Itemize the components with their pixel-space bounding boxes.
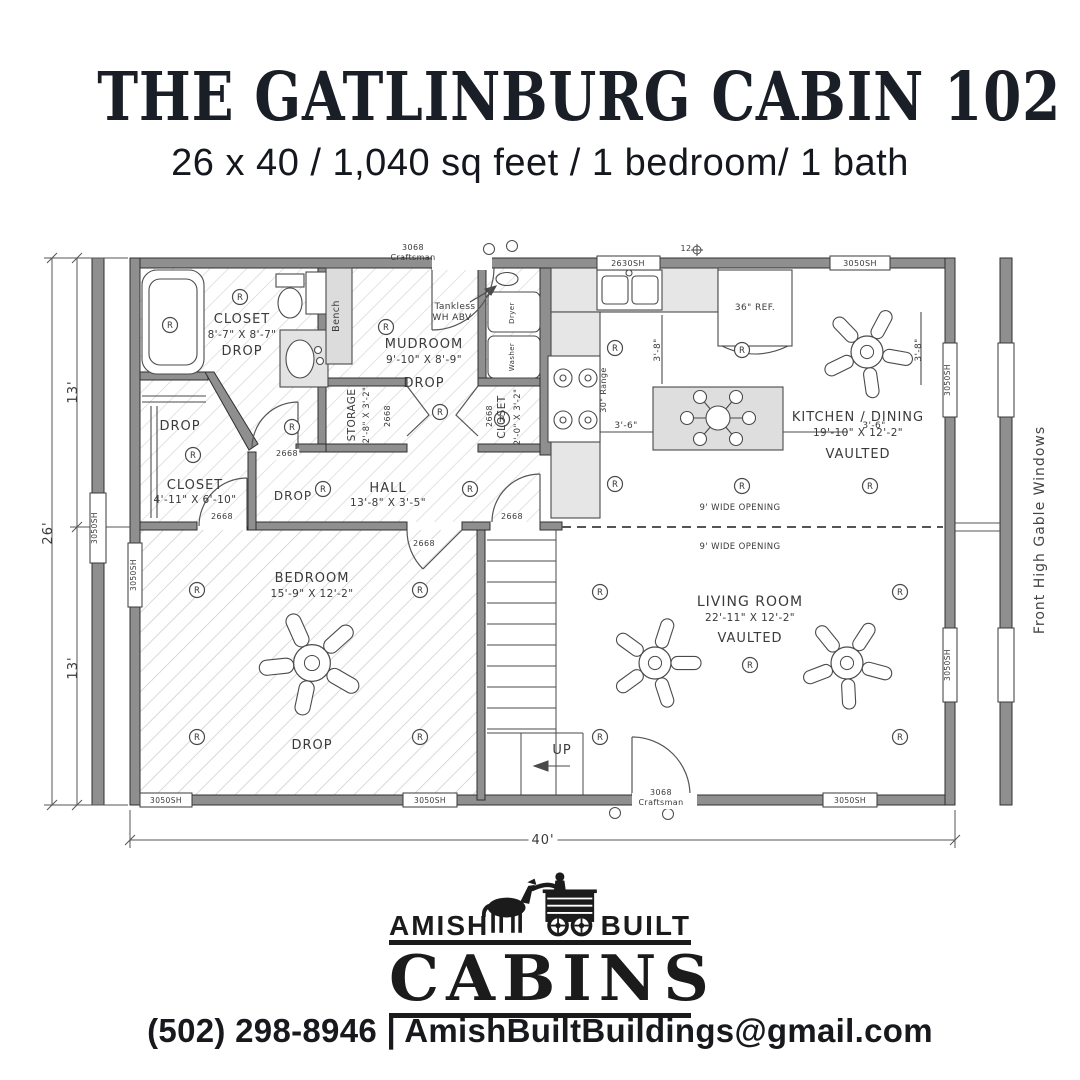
- plan-label: 22'-11" X 12'-2": [705, 612, 795, 624]
- ceiling-fan: [614, 617, 701, 709]
- recessed-light-symbol: R: [186, 448, 201, 463]
- recessed-light-symbol: R: [893, 585, 908, 600]
- recessed-light-symbol: R: [163, 318, 178, 333]
- plan-label: 3050SH: [943, 364, 952, 396]
- svg-text:R: R: [739, 482, 745, 492]
- plan-label: VAULTED: [825, 447, 890, 462]
- recessed-light-symbol: R: [863, 479, 878, 494]
- plan-label: 19'-10" X 12'-2": [813, 427, 903, 439]
- recessed-light-symbol: R: [379, 320, 394, 335]
- plan-label: CLOSET: [496, 395, 508, 438]
- plan-label: 2668: [485, 405, 494, 427]
- plan-label: DROP: [159, 419, 200, 434]
- toilet: [276, 274, 304, 287]
- svg-text:R: R: [194, 586, 200, 596]
- dim-bottom: 40': [531, 833, 554, 848]
- svg-text:R: R: [289, 423, 295, 433]
- plan-label: BEDROOM: [275, 571, 350, 586]
- plan-label: Dryer: [508, 302, 516, 324]
- svg-text:R: R: [417, 733, 423, 743]
- logo: AMISH BUILT C: [389, 866, 691, 1018]
- door-gap: [432, 256, 492, 270]
- svg-text:R: R: [167, 321, 173, 331]
- brand-built: BUILT: [601, 913, 691, 938]
- plan-label: KITCHEN / DINING: [792, 410, 924, 425]
- svg-text:R: R: [194, 733, 200, 743]
- recessed-light-symbol: R: [316, 482, 331, 497]
- plan-label: DROP: [403, 376, 444, 391]
- window: [998, 628, 1014, 702]
- recessed-light-symbol: R: [433, 405, 448, 420]
- brand-cabins: CABINS: [389, 947, 691, 1010]
- plan-label: 9'-10" X 8'-9": [386, 354, 462, 366]
- recessed-light-symbol: R: [735, 479, 750, 494]
- recessed-light-symbol: R: [593, 730, 608, 745]
- svg-text:R: R: [612, 480, 618, 490]
- plan-label: 2668: [413, 539, 435, 548]
- plan-label: 3050SH: [414, 796, 446, 805]
- recessed-light-symbol: R: [593, 585, 608, 600]
- plan-label: WH ABV: [432, 313, 472, 323]
- svg-text:R: R: [897, 588, 903, 598]
- dim-left-bottom: 13': [66, 656, 81, 679]
- island-light: [706, 406, 730, 430]
- plan-label: 2630SH: [611, 259, 645, 268]
- plan-label: 3'-8": [914, 338, 924, 361]
- brand-amish: AMISH: [389, 913, 489, 938]
- plan-label: MUDROOM: [385, 337, 463, 352]
- recessed-light-symbol: R: [413, 730, 428, 745]
- recessed-light-symbol: R: [893, 730, 908, 745]
- svg-text:R: R: [897, 733, 903, 743]
- plan-label: Washer: [508, 343, 516, 371]
- recessed-light-symbol: R: [463, 482, 478, 497]
- plan-label: 3050SH: [834, 796, 866, 805]
- plan-label: 3050SH: [943, 649, 952, 681]
- plan-label: 36" REF.: [735, 303, 775, 313]
- plan-label: 2668: [276, 449, 298, 458]
- recessed-light-symbol: R: [743, 658, 758, 673]
- recessed-light-symbol: R: [190, 730, 205, 745]
- plan-label: 4'-11" X 6'-10": [154, 494, 237, 506]
- plan-label: 9' WIDE OPENING: [700, 542, 781, 552]
- window: [998, 343, 1014, 417]
- dim-left-total: 26': [41, 521, 56, 544]
- plan-label: Tankless: [433, 302, 475, 312]
- svg-text:R: R: [747, 661, 753, 671]
- plan-label: 12: [681, 244, 692, 253]
- plan-label: 3050SH: [90, 512, 99, 544]
- plan-label: 3050SH: [129, 559, 138, 591]
- svg-text:R: R: [383, 323, 389, 333]
- svg-text:R: R: [320, 485, 326, 495]
- recessed-light-symbol: R: [233, 290, 248, 305]
- plan-label: DROP: [291, 738, 332, 753]
- front-gable-wall: [1000, 258, 1012, 805]
- ceiling-fan: [823, 308, 914, 398]
- plan-label: 8'-7" X 8'-7": [208, 329, 277, 341]
- svg-text:R: R: [237, 293, 243, 303]
- recessed-light-symbol: R: [735, 343, 750, 358]
- dim-left-top: 13': [66, 380, 81, 403]
- plan-label: 2'-8" X 3'-2": [362, 387, 372, 444]
- side-note: Front High Gable Windows: [1032, 426, 1048, 634]
- svg-text:R: R: [417, 586, 423, 596]
- linen-cabinet: [306, 272, 328, 314]
- plan-label: 15'-9" X 12'-2": [271, 588, 354, 600]
- plan-label: 3'-6": [614, 421, 637, 431]
- svg-text:R: R: [867, 482, 873, 492]
- plan-label: 2'-0" X 3'-2": [513, 389, 523, 446]
- svg-text:R: R: [467, 485, 473, 495]
- plan-label: 2668: [383, 405, 392, 427]
- plan-label: HALL: [369, 481, 406, 496]
- ceiling-fan: [802, 621, 894, 710]
- up-arrow: [534, 761, 548, 771]
- plan-label: 3050SH: [843, 259, 877, 268]
- plan-label: 2668: [501, 512, 523, 521]
- svg-text:R: R: [437, 408, 443, 418]
- contact-line: (502) 298-8946 | AmishBuiltBuildings@gma…: [0, 1012, 1080, 1050]
- svg-text:R: R: [597, 733, 603, 743]
- recessed-light-symbol: R: [413, 583, 428, 598]
- recessed-light-symbol: R: [285, 420, 300, 435]
- plan-label: DROP: [274, 489, 312, 503]
- plan-label: Bench: [331, 300, 342, 332]
- plan-label: 3'-6": [862, 421, 885, 431]
- recessed-light-symbol: R: [190, 583, 205, 598]
- svg-text:R: R: [612, 344, 618, 354]
- recessed-light-symbol: R: [608, 341, 623, 356]
- plan-label: 3068: [402, 243, 424, 252]
- plan-label: 3050SH: [150, 796, 182, 805]
- recessed-light-symbol: R: [608, 477, 623, 492]
- plan-label: 2668: [211, 512, 233, 521]
- plan-label: UP: [552, 743, 571, 758]
- plan-label: CLOSET: [214, 312, 271, 327]
- plan-label: Craftsman: [390, 253, 435, 262]
- plan-label: DROP: [221, 344, 262, 359]
- plan-label: 3'-8": [653, 338, 663, 361]
- plan-label: STORAGE: [346, 389, 358, 442]
- svg-text:R: R: [739, 346, 745, 356]
- plan-label: CLOSET: [167, 478, 224, 493]
- plan-label: 9' WIDE OPENING: [700, 503, 781, 513]
- plan-label: VAULTED: [717, 631, 782, 646]
- plan-label: 13'-8" X 3'-5": [350, 497, 426, 509]
- plan-label: 30" Range: [599, 367, 608, 412]
- sink: [286, 340, 314, 378]
- plan-label: Craftsman: [638, 798, 683, 807]
- plan-label: LIVING ROOM: [697, 594, 803, 610]
- plan-label: 3068: [650, 788, 672, 797]
- range: [548, 356, 600, 442]
- svg-text:R: R: [190, 451, 196, 461]
- horse-and-wagon-icon: [476, 866, 604, 940]
- svg-text:R: R: [597, 588, 603, 598]
